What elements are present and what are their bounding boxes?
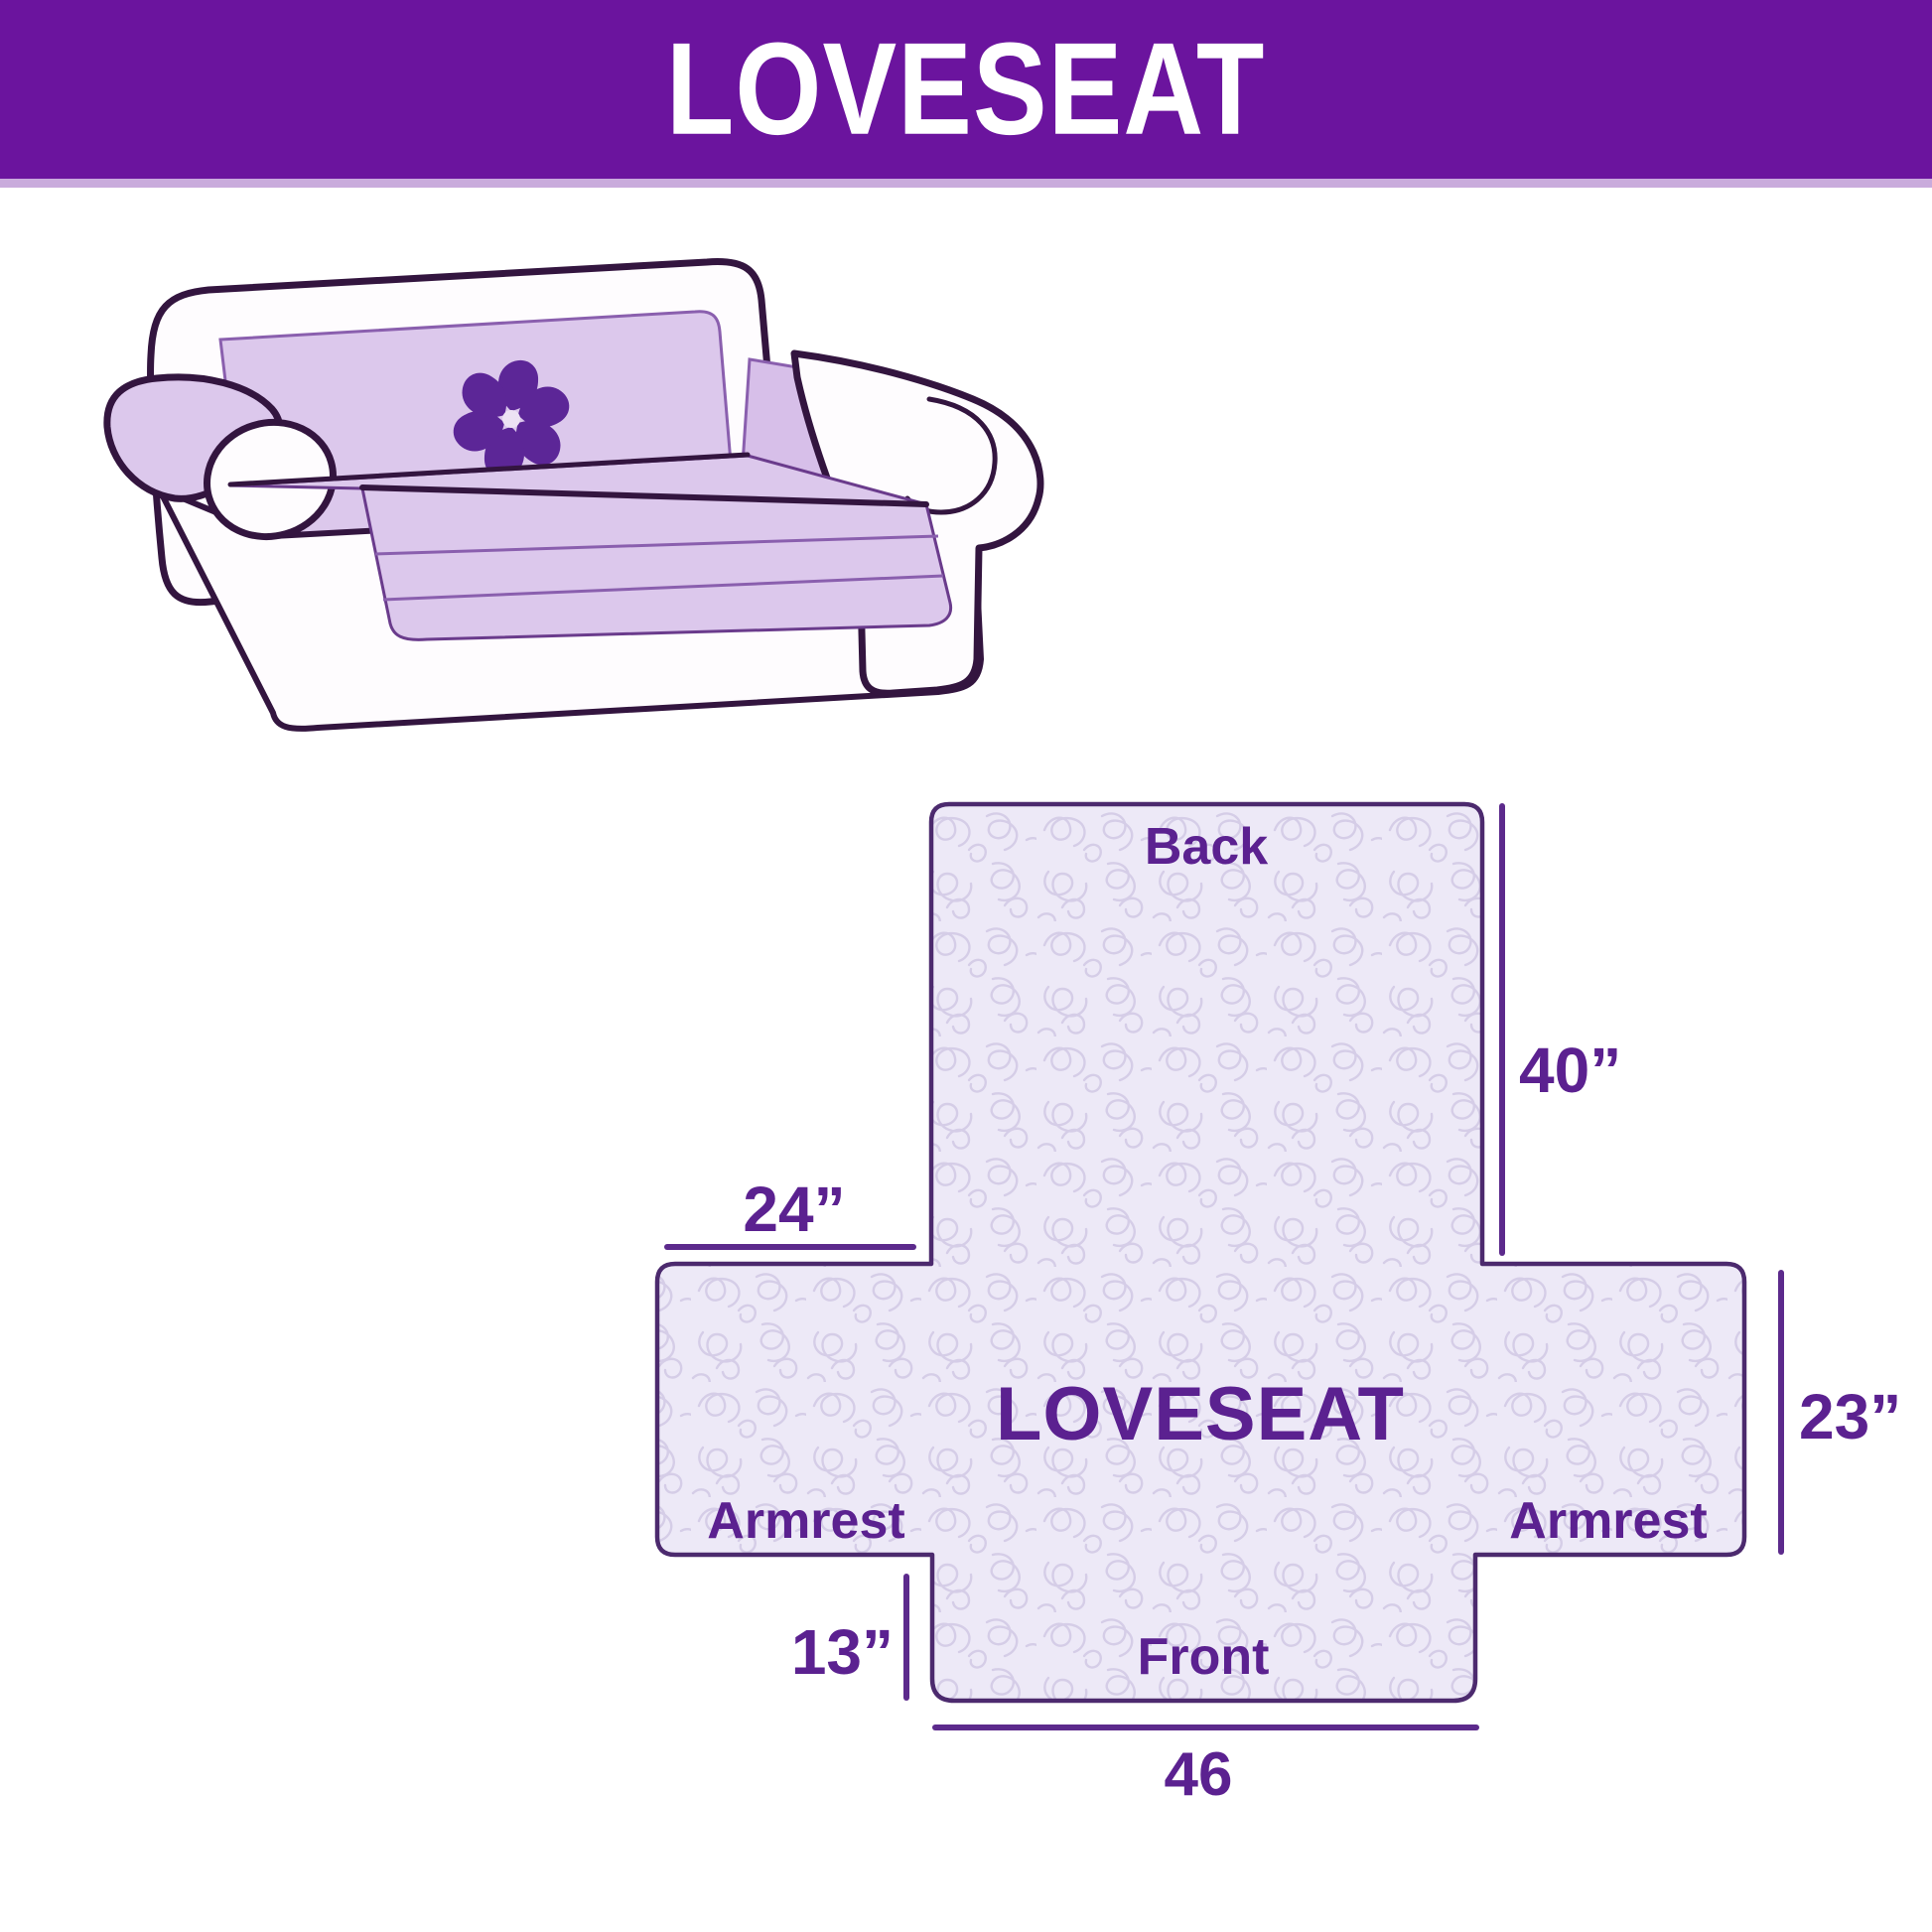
label-center: LOVESEAT <box>996 1372 1405 1456</box>
dim-side-height: 23” <box>1799 1381 1901 1452</box>
label-front: Front <box>1138 1628 1270 1686</box>
dim-front-width: 46 <box>1165 1740 1233 1809</box>
dim-front-skirt-height: 13” <box>791 1616 894 1688</box>
page: { "header": { "title": "LOVESEAT", "bg_c… <box>0 0 1932 1932</box>
label-armrest-left: Armrest <box>707 1492 904 1550</box>
label-back: Back <box>1145 818 1268 876</box>
cover-outline-shape <box>657 804 1744 1701</box>
dim-back-height: 40” <box>1519 1035 1621 1106</box>
dim-armrest-top-width: 24” <box>743 1173 845 1245</box>
label-armrest-right: Armrest <box>1509 1492 1707 1550</box>
cover-diagram: Back LOVESEAT Armrest Armrest Front 40” … <box>0 0 1932 1932</box>
